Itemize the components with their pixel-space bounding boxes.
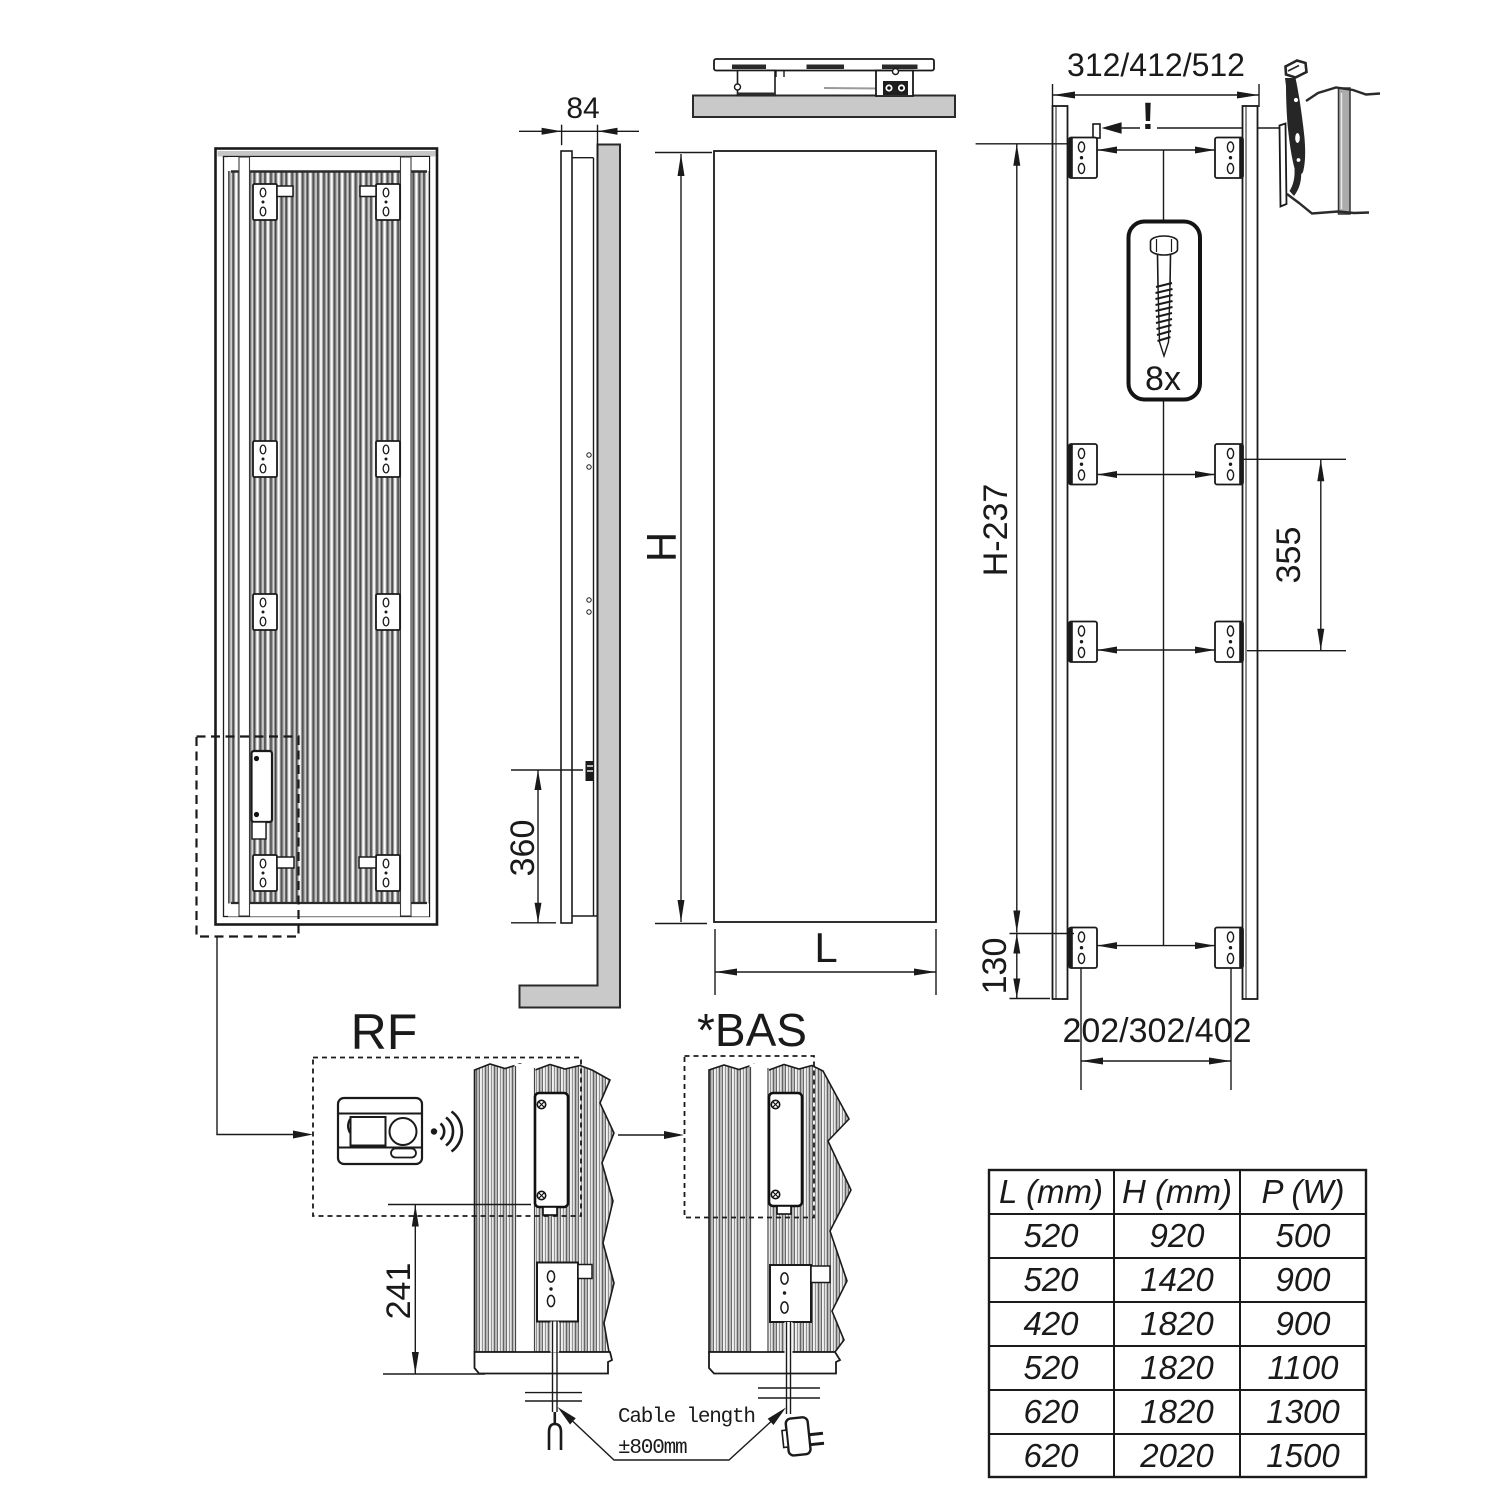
svg-text:920: 920 xyxy=(1149,1217,1205,1254)
svg-text:1820: 1820 xyxy=(1140,1349,1214,1386)
svg-text:2020: 2020 xyxy=(1139,1437,1214,1474)
svg-text:H: H xyxy=(638,532,685,562)
svg-text:312/412/512: 312/412/512 xyxy=(1067,47,1245,83)
svg-text:1300: 1300 xyxy=(1266,1393,1340,1430)
svg-text:241: 241 xyxy=(380,1263,418,1320)
svg-text:355: 355 xyxy=(1270,527,1308,584)
svg-text:900: 900 xyxy=(1275,1305,1331,1342)
svg-text:130: 130 xyxy=(976,938,1014,995)
svg-text:900: 900 xyxy=(1275,1261,1331,1298)
svg-text:1820: 1820 xyxy=(1140,1305,1214,1342)
svg-text:84: 84 xyxy=(566,92,599,125)
svg-text:1420: 1420 xyxy=(1140,1261,1214,1298)
svg-text:420: 420 xyxy=(1023,1305,1079,1342)
svg-text:500: 500 xyxy=(1275,1217,1331,1254)
svg-text:!: ! xyxy=(1142,96,1155,138)
svg-text:202/302/402: 202/302/402 xyxy=(1062,1012,1251,1050)
svg-text:RF: RF xyxy=(351,1004,418,1060)
svg-text:520: 520 xyxy=(1023,1349,1079,1386)
svg-text:1820: 1820 xyxy=(1140,1393,1214,1430)
svg-text:L (mm): L (mm) xyxy=(999,1173,1103,1210)
svg-text:H-237: H-237 xyxy=(977,484,1015,577)
svg-text:360: 360 xyxy=(504,820,542,877)
svg-text:P (W): P (W) xyxy=(1261,1173,1344,1210)
svg-text:520: 520 xyxy=(1023,1217,1079,1254)
svg-text:1500: 1500 xyxy=(1266,1437,1340,1474)
svg-text:H (mm): H (mm) xyxy=(1122,1173,1232,1210)
svg-text:±800mm: ±800mm xyxy=(618,1437,687,1460)
svg-text:1100: 1100 xyxy=(1268,1349,1340,1386)
svg-text:520: 520 xyxy=(1023,1261,1079,1298)
svg-text:8x: 8x xyxy=(1145,360,1181,398)
svg-text:*BAS: *BAS xyxy=(697,1004,807,1056)
svg-text:620: 620 xyxy=(1023,1437,1079,1474)
svg-text:L: L xyxy=(814,924,837,971)
svg-text:Cable length: Cable length xyxy=(618,1406,755,1429)
svg-text:620: 620 xyxy=(1023,1393,1079,1430)
